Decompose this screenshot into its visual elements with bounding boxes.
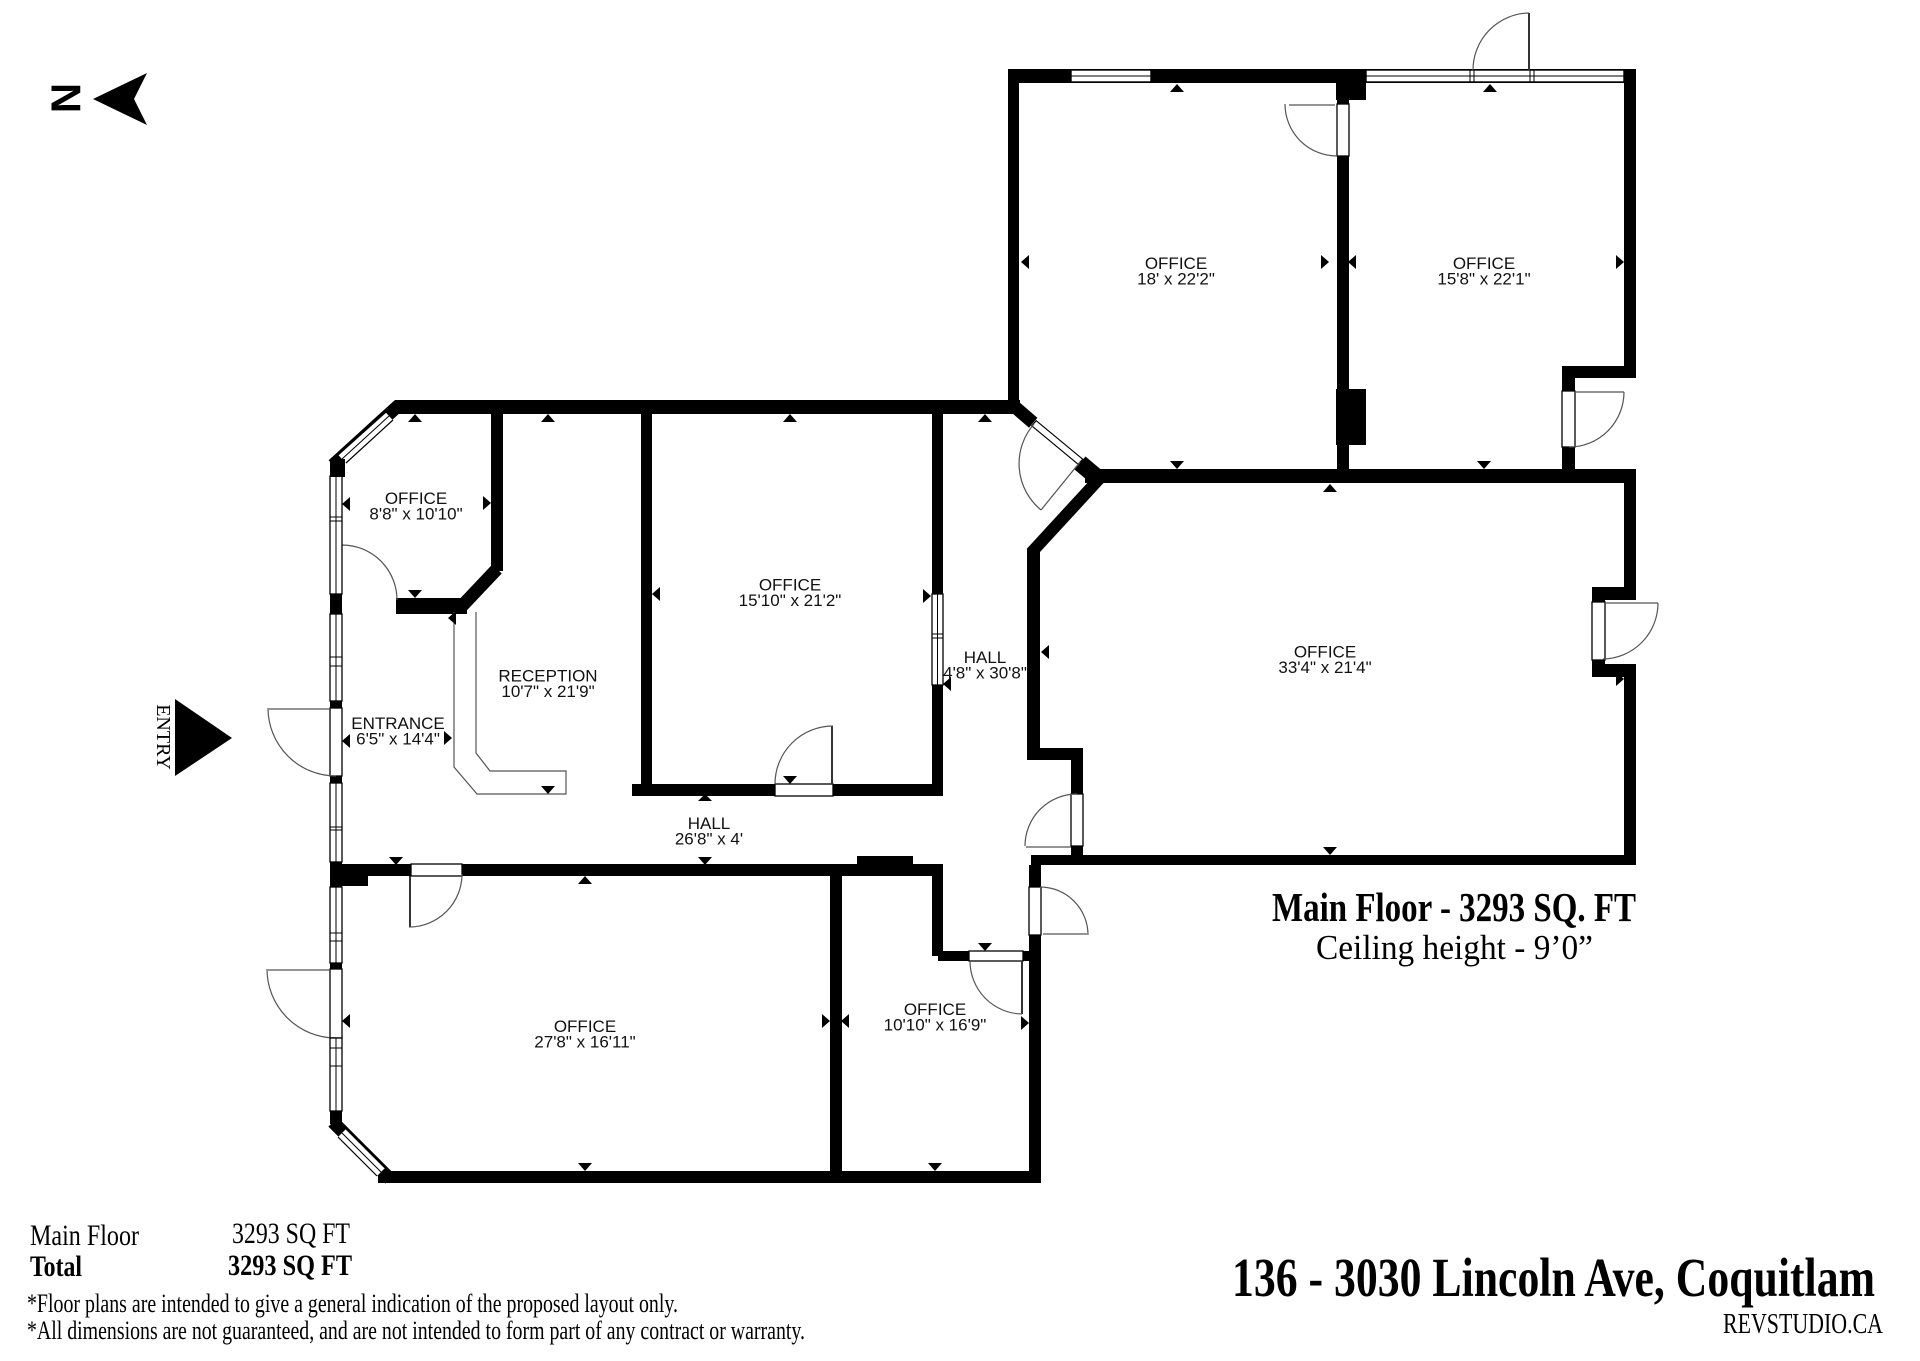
svg-text:Total: Total xyxy=(30,1250,82,1283)
svg-text:8'8" x 10'10": 8'8" x 10'10" xyxy=(369,505,462,524)
svg-text:ENTRY: ENTRY xyxy=(152,704,174,770)
svg-text:4'8" x 30'8": 4'8" x 30'8" xyxy=(943,664,1027,683)
svg-text:136 - 3030 Lincoln Ave, Coquit: 136 - 3030 Lincoln Ave, Coquitlam xyxy=(1232,1247,1875,1308)
svg-text:*All dimensions are not guaran: *All dimensions are not guaranteed, and … xyxy=(27,1316,805,1345)
svg-text:6'5" x 14'4": 6'5" x 14'4" xyxy=(356,730,440,749)
svg-text:Main Floor - 3293 SQ. FT: Main Floor - 3293 SQ. FT xyxy=(1272,884,1636,930)
svg-text:10'7" x 21'9": 10'7" x 21'9" xyxy=(501,682,594,701)
svg-text:Main Floor: Main Floor xyxy=(30,1219,139,1252)
svg-text:18' x 22'2": 18' x 22'2" xyxy=(1137,270,1215,289)
svg-text:15'8" x 22'1": 15'8" x 22'1" xyxy=(1437,270,1530,289)
svg-text:REVSTUDIO.CA: REVSTUDIO.CA xyxy=(1723,1308,1883,1340)
svg-text:Ceiling height - 9’0”: Ceiling height - 9’0” xyxy=(1316,928,1593,967)
svg-text:15'10" x 21'2": 15'10" x 21'2" xyxy=(739,591,842,610)
svg-text:3293 SQ FT: 3293 SQ FT xyxy=(232,1217,350,1250)
svg-text:26'8" x 4': 26'8" x 4' xyxy=(675,830,743,849)
svg-text:3293 SQ FT: 3293 SQ FT xyxy=(228,1249,352,1282)
svg-text:10'10" x 16'9": 10'10" x 16'9" xyxy=(884,1016,987,1035)
svg-text:N: N xyxy=(43,83,90,113)
svg-text:33'4" x 21'4": 33'4" x 21'4" xyxy=(1278,658,1371,677)
svg-text:27'8" x 16'11": 27'8" x 16'11" xyxy=(534,1033,635,1052)
svg-text:*Floor plans are intended to g: *Floor plans are intended to give a gene… xyxy=(27,1289,678,1318)
